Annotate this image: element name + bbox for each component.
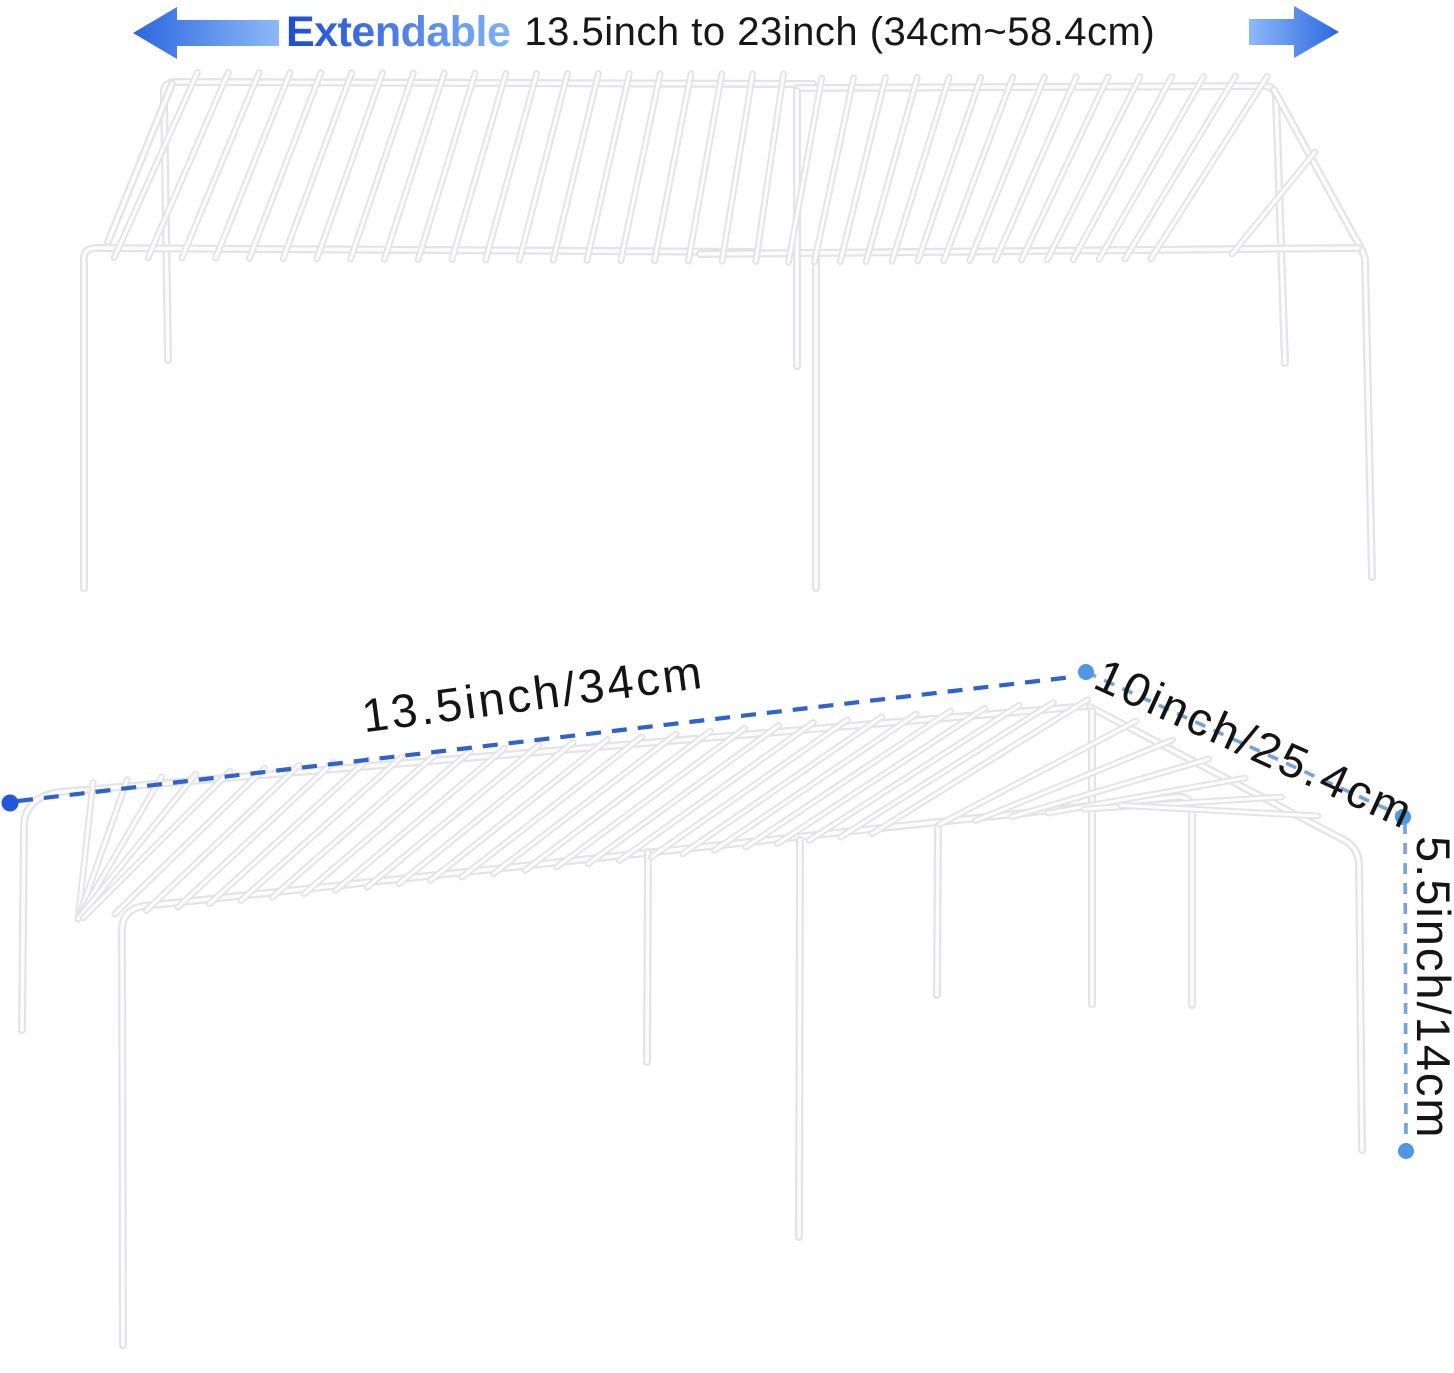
retracted-rack-illustration <box>22 700 1362 1345</box>
height-dimension-label: 5.5inch/14cm <box>1406 828 1454 1148</box>
extendable-label: Extendable <box>286 8 510 57</box>
header: Extendable 13.5inch to 23inch (34cm~58.4… <box>286 0 1155 64</box>
product-image: Extendable 13.5inch to 23inch (34cm~58.4… <box>0 0 1454 1373</box>
extend-range-label: 13.5inch to 23inch (34cm~58.4cm) <box>524 10 1155 55</box>
extended-rack-illustration <box>84 72 1372 588</box>
extend-right-arrow-icon <box>1249 4 1339 60</box>
extend-left-arrow-icon <box>133 5 279 61</box>
